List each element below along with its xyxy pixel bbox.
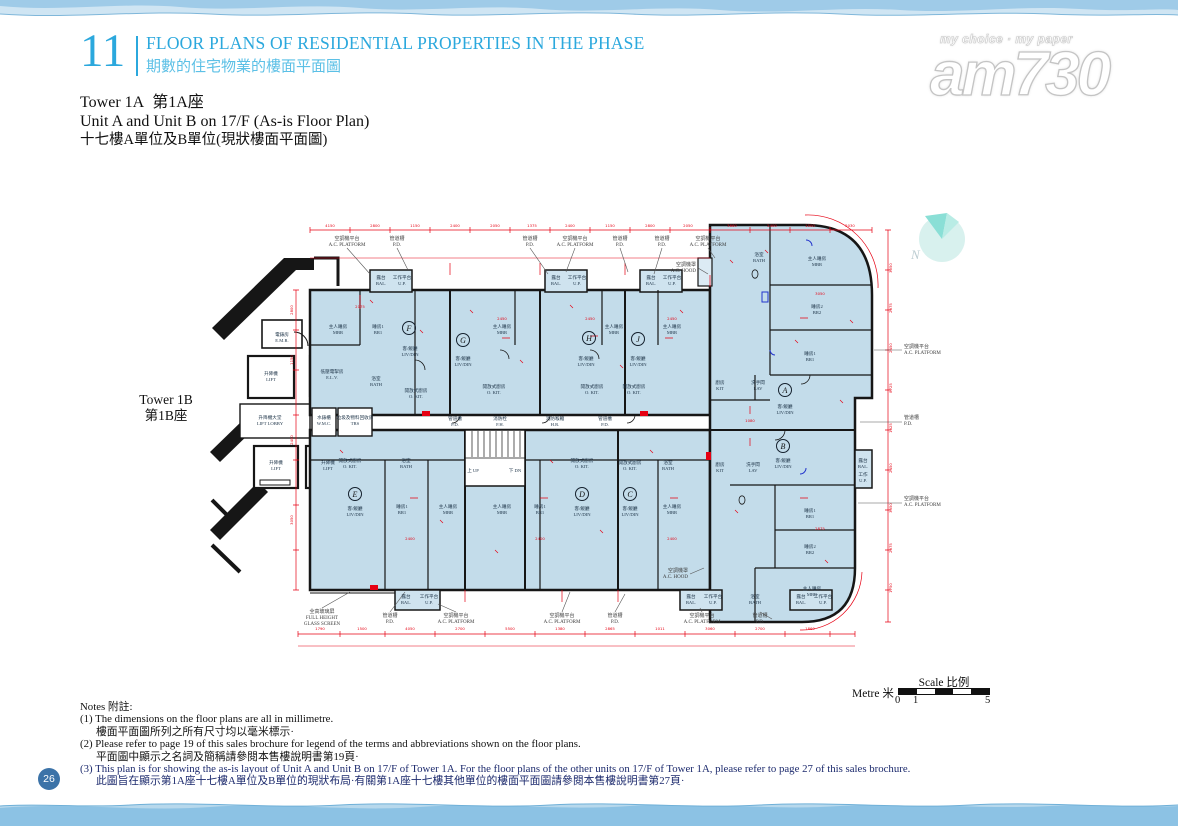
plan-label: 睡房2	[811, 303, 823, 310]
plan-label: 露台	[686, 593, 696, 600]
plan-label: 空調機罩	[668, 567, 688, 574]
plan-label: U.P.	[709, 600, 717, 605]
plan-label: F.H.	[496, 422, 504, 427]
plan-label: 管道槽	[607, 612, 622, 619]
plan-dimension: 4150	[325, 223, 335, 228]
bottom-wave-band	[0, 798, 1178, 826]
scale-track	[898, 688, 990, 695]
plan-dimension: 1150	[410, 223, 420, 228]
plan-label: BAL.	[796, 600, 806, 605]
plan-label: U.P.	[668, 281, 676, 286]
plan-label: BR1	[806, 514, 815, 519]
plan-label: 主人睡房	[808, 255, 827, 262]
plan-label: LIV/DIN	[346, 512, 364, 517]
plan-dimension: 3050	[289, 515, 294, 525]
plan-label: KIT	[716, 468, 724, 473]
plan-label: MBR	[812, 262, 823, 267]
plan-label: 洗手間	[751, 379, 765, 386]
plan-label: 客/飯廳	[402, 345, 417, 352]
plan-label: LIFT LOBBY	[257, 421, 284, 426]
plan-dimension: 2400	[667, 536, 677, 541]
plan-label: 管道槽	[598, 415, 612, 422]
plan-label: 工作	[858, 471, 868, 478]
plan-label: 空調機平台	[904, 343, 929, 350]
tower-name-zh: 第1A座	[152, 94, 204, 111]
plan-dimension: 1375	[527, 223, 537, 228]
plan-dimension: 3350	[888, 503, 893, 513]
plan-dimension: 2400	[450, 223, 460, 228]
note-3-en: (3) This plan is for showing the as-is l…	[80, 763, 1150, 775]
am730-logo: am730	[930, 46, 1150, 104]
plan-dimension: 2030	[845, 223, 855, 228]
plan-label: A.C. PLATFORM	[904, 503, 941, 508]
plan-dimension: 1750	[888, 583, 893, 593]
plan-label: BATH	[749, 600, 762, 605]
plan-label: LIV/DIN	[577, 362, 595, 367]
plan-label: 管道槽	[448, 415, 462, 422]
plan-label: U.P.	[398, 281, 406, 286]
plan-label: O. KIT.	[487, 390, 501, 395]
plan-label: LIV/DIN	[454, 362, 472, 367]
plan-label: P.D.	[904, 422, 912, 427]
plan-label: 空調機罩	[676, 261, 696, 268]
plan-label: LIFT	[271, 466, 281, 471]
plan-dimension: 2050	[683, 223, 693, 228]
unit-letter-D: D	[578, 490, 585, 499]
plan-label: 開放式廚房	[483, 383, 506, 390]
section-number: 11	[80, 26, 125, 76]
plan-label: BR1	[536, 510, 545, 515]
plan-dimension: 2875	[888, 303, 893, 313]
subtitle-tower-line: Tower 1A 第1A座	[80, 93, 369, 112]
plan-label: BATH	[753, 258, 766, 263]
plan-label: 睡房2	[804, 543, 816, 550]
plan-label: 客/飯廳	[455, 355, 470, 362]
plan-label: 工作平台	[568, 274, 587, 281]
page-number-badge: 26	[38, 768, 60, 790]
plan-label: FULL HEIGHT	[306, 616, 338, 621]
plan-dimension: 4050	[405, 626, 415, 631]
unit-letter-C: C	[627, 490, 633, 499]
plan-label: 主人睡房	[663, 323, 682, 330]
unit-letter-E: E	[352, 490, 358, 499]
north-arrow-art: N	[905, 206, 975, 276]
scale-unit-label: Metre 米	[852, 685, 894, 701]
plan-label: 空調機平台	[549, 612, 574, 619]
plan-label: 客/飯廳	[578, 355, 593, 362]
plan-label: 洗手間	[746, 461, 760, 468]
plan-label: H.R.	[551, 422, 560, 427]
top-wave-band	[0, 0, 1178, 22]
plan-label: BR1	[398, 510, 407, 515]
plan-dimension: 2400	[289, 435, 294, 445]
subtitle-unit-line-en: Unit A and Unit B on 17/F (As-is Floor P…	[80, 112, 369, 131]
subtitle-unit-line-zh: 十七樓A單位及B單位(現狀樓面平面圖)	[80, 131, 369, 150]
plan-label: 主人睡房	[803, 585, 822, 592]
floor-plan-svg: 空調機平台A.C. PLATFORM管道槽P.D.管道槽P.D.空調機平台A.C…	[210, 200, 950, 660]
tower-name-en: Tower 1A	[80, 94, 144, 111]
plan-label: 露台	[551, 274, 561, 281]
plan-label: LIV/DIN	[776, 410, 794, 415]
plan-label: 升降機	[321, 459, 335, 466]
plan-label: E.L.V.	[326, 375, 338, 380]
plan-dimension: 3660	[727, 223, 737, 228]
tower-1b-en: Tower 1B	[118, 392, 214, 408]
notes-section: Notes 附註: (1) The dimensions on the floo…	[80, 701, 1150, 788]
plan-label: 消防栓	[493, 415, 507, 422]
header-divider	[136, 36, 138, 76]
plan-label: O. KIT.	[627, 390, 641, 395]
plan-label: 廚房	[715, 461, 725, 468]
plan-dimension: 2865	[605, 626, 615, 631]
plan-dimension: 1150	[289, 355, 294, 365]
plan-dimension: 2875	[888, 543, 893, 553]
plan-label: A.C. HOOD	[671, 269, 697, 274]
plan-label: LIV/DIN	[401, 352, 419, 357]
plan-label: 工作平台	[814, 593, 833, 600]
plan-label: 空調機平台	[334, 235, 359, 242]
plan-label: 管道槽	[389, 235, 404, 242]
plan-dimension: 2450	[667, 316, 677, 321]
plan-label: 管道槽	[752, 612, 767, 619]
page-title-en: FLOOR PLANS OF RESIDENTIAL PROPERTIES IN…	[146, 33, 645, 54]
plan-label: 睡房1	[804, 350, 816, 357]
plan-label: 電錶房	[275, 331, 289, 338]
plan-label: MBR	[609, 330, 620, 335]
plan-label: 管道槽	[904, 414, 919, 421]
plan-dimension: 2450	[585, 316, 595, 321]
plan-label: 客/飯廳	[622, 505, 637, 512]
plan-dimension: 8725	[888, 383, 893, 393]
plan-label: U.P.	[425, 600, 433, 605]
unit-letter-J: J	[636, 335, 640, 344]
plan-label: 露台	[796, 593, 806, 600]
note-2-zh: 平面圖中顯示之名詞及簡稱請參閱本售樓說明書第19頁·	[80, 751, 1150, 763]
plan-label: 空調機平台	[562, 235, 587, 242]
plan-label: P.D.	[526, 243, 534, 248]
note-3-zh: 此圖旨在顯示第1A座十七樓A單位及B單位的現狀布局·有關第1A座十七樓其他單位的…	[80, 775, 1150, 787]
plan-dimension: 1150	[605, 223, 615, 228]
plan-label: P.D.	[611, 620, 619, 625]
plan-label: 垃圾及物料回收房	[337, 414, 374, 421]
plan-label: BAL.	[686, 600, 696, 605]
plan-label: U.P.	[573, 281, 581, 286]
plan-label: A.C. PLATFORM	[557, 243, 594, 248]
plan-dimension: 2875	[815, 526, 825, 531]
plan-dimension: 2450	[497, 316, 507, 321]
plan-label: U.P.	[859, 478, 867, 483]
plan-dimension: 2700	[455, 626, 465, 631]
plan-dimension: 2800	[645, 223, 655, 228]
plan-label: 開放式廚房	[571, 457, 594, 464]
plan-dimension: 3050	[888, 263, 893, 273]
plan-label: A.C. PLATFORM	[544, 620, 581, 625]
plan-label: 開放式廚房	[405, 387, 428, 394]
plan-label: 主人睡房	[605, 323, 624, 330]
note-2-en: (2) Please refer to page 19 of this sale…	[80, 738, 1150, 750]
plan-label: P.D.	[386, 620, 394, 625]
plan-label: 露台	[401, 593, 411, 600]
plan-label: KIT	[716, 386, 724, 391]
plan-label: O. KIT.	[409, 394, 423, 399]
plan-label: O. KIT.	[585, 390, 599, 395]
plan-label: 客/飯廳	[777, 403, 792, 410]
plan-label: A.C. PLATFORM	[329, 243, 366, 248]
plan-label: 工作平台	[663, 274, 682, 281]
plan-label: 工作平台	[704, 593, 723, 600]
plan-label: 開放式廚房	[339, 457, 362, 464]
plan-label: BR2	[806, 550, 815, 555]
note-1-en: (1) The dimensions on the floor plans ar…	[80, 713, 1150, 725]
top-wave-art	[0, 0, 1178, 22]
plan-dimension: 2450	[888, 463, 893, 473]
plan-label: LIV/DIN	[774, 464, 792, 469]
plan-label: 低壓電掣房	[321, 368, 344, 375]
unit-letter-B: B	[781, 442, 786, 451]
plan-dimension: 2700	[755, 626, 765, 631]
plan-label: P.D.	[451, 422, 459, 427]
plan-dimension: 1825	[888, 423, 893, 433]
plan-label: 上 UP	[467, 467, 479, 473]
plan-label: W.M.C.	[317, 421, 332, 426]
plan-label: 浴室	[750, 593, 760, 600]
plan-dimension: 2800	[289, 305, 294, 315]
plan-label: 管道槽	[612, 235, 627, 242]
plan-label: LIFT	[266, 377, 276, 382]
note-1-zh: 樓面平面圖所列之所有尺寸均以毫米標示·	[80, 726, 1150, 738]
plan-label: 主人睡房	[329, 323, 348, 330]
plan-label: BR1	[374, 330, 383, 335]
plan-label: 消防喉轆	[546, 415, 565, 422]
plan-label: A.C. PLATFORM	[684, 620, 721, 625]
unit-letter-F: F	[406, 324, 412, 333]
plan-label: BAL.	[858, 464, 868, 469]
plan-label: BR2	[813, 310, 822, 315]
plan-label: P.D.	[756, 620, 764, 625]
north-arrow: N	[905, 206, 975, 276]
plan-dimension: 1790	[315, 626, 325, 631]
plan-label: 工作平台	[393, 274, 412, 281]
plan-label: 睡房1	[534, 503, 546, 510]
plan-label: BAL.	[551, 281, 561, 286]
plan-label: LAV	[754, 386, 764, 391]
plan-label: O. KIT.	[623, 466, 637, 471]
bottom-wave-art	[0, 798, 1178, 826]
plan-label: O. KIT.	[343, 464, 357, 469]
plan-label: 開放式廚房	[619, 459, 642, 466]
plan-label: LIV/DIN	[573, 512, 591, 517]
plan-label: 客/飯廳	[574, 505, 589, 512]
plan-label: BATH	[662, 466, 675, 471]
plan-dimension: 2450	[888, 343, 893, 353]
plan-label: 浴室	[371, 375, 381, 382]
plan-label: 露台	[858, 457, 868, 464]
plan-label: LIV/DIN	[621, 512, 639, 517]
plan-dimension: 3060	[705, 626, 715, 631]
plan-dimension: 1860	[805, 626, 815, 631]
plan-label: 主人睡房	[663, 503, 682, 510]
plan-label: BR1	[806, 357, 815, 362]
plan-dimension: 2175	[355, 304, 365, 309]
plan-label: U.P.	[819, 600, 827, 605]
plan-label: A.C. PLATFORM	[438, 620, 475, 625]
plan-label: 睡房1	[372, 323, 384, 330]
plan-label: 浴室	[663, 459, 673, 466]
plan-dimension: 5500	[505, 626, 515, 631]
plan-dimension: 2400	[535, 536, 545, 541]
plan-label: BAL.	[646, 281, 656, 286]
plan-label: 浴室	[401, 457, 411, 464]
plan-label: MBR	[497, 330, 508, 335]
plan-label: 管道槽	[654, 235, 669, 242]
plan-label: MBR	[333, 330, 344, 335]
plan-label: MBR	[667, 330, 678, 335]
plan-label: 客/飯廳	[630, 355, 645, 362]
plan-label: LAV	[749, 468, 759, 473]
plan-label: 主人睡房	[439, 503, 458, 510]
plan-label: 空調機平台	[689, 612, 714, 619]
plan-label: 露台	[646, 274, 656, 281]
plan-dimension: 1380	[555, 626, 565, 631]
building-walls	[310, 225, 872, 622]
plan-label: 水錶櫃	[317, 414, 331, 421]
plan-dimension: 2050	[490, 223, 500, 228]
plan-label: MBR	[497, 510, 508, 515]
plan-label: 睡房1	[804, 507, 816, 514]
plan-label: 露台	[376, 274, 386, 281]
tower-1b-zh: 第1B座	[118, 408, 214, 424]
page-title-zh: 期數的住宅物業的樓面平面圖	[146, 55, 341, 76]
plan-label: BAL.	[401, 600, 411, 605]
plan-label: 浴室	[754, 251, 764, 258]
plan-dimension: 1011	[655, 626, 665, 631]
plan-dimension: 2800	[370, 223, 380, 228]
plan-label: 開放式廚房	[581, 383, 604, 390]
plan-label: 開放式廚房	[623, 383, 646, 390]
plan-label: P.D.	[393, 243, 401, 248]
plan-label: 空調機平台	[904, 495, 929, 502]
plan-label: 升降機	[264, 370, 278, 377]
tower-1b-label: Tower 1B 第1B座	[118, 392, 214, 424]
plan-label: BATH	[400, 464, 413, 469]
unit-letter-A: A	[782, 386, 788, 395]
am730-watermark: my choice · my paper am730	[930, 32, 1150, 104]
plan-dimension: 1500	[357, 626, 367, 631]
plan-label: 客/飯廳	[347, 505, 362, 512]
plan-dimension: 2400	[405, 536, 415, 541]
plan-label: 管道槽	[382, 612, 397, 619]
plan-label: E.M.R.	[275, 338, 288, 343]
unit-letter-G: G	[460, 336, 466, 345]
plan-label: MBR	[667, 510, 678, 515]
plan-label: 主人睡房	[493, 323, 512, 330]
plan-label: A.C. PLATFORM	[904, 351, 941, 356]
plan-label: 全高玻璃屏	[309, 608, 334, 615]
plan-label: 管道槽	[522, 235, 537, 242]
plan-label: A.C. HOOD	[663, 575, 689, 580]
plan-label: P.D.	[601, 422, 609, 427]
plan-dimension: 1500	[805, 223, 815, 228]
plan-label: BATH	[370, 382, 383, 387]
plan-label: A.C. PLATFORM	[690, 243, 727, 248]
plan-label: 空調機平台	[695, 235, 720, 242]
plan-dimension: 3050	[815, 291, 825, 296]
plan-label: BAL.	[376, 281, 386, 286]
plan-label: 工作平台	[420, 593, 439, 600]
plan-label: 廚房	[715, 379, 725, 386]
plan-label: 睡房1	[396, 503, 408, 510]
plan-label: 客/飯廳	[775, 457, 790, 464]
notes-heading: Notes 附註:	[80, 701, 1150, 713]
plan-label: 升降機	[269, 459, 283, 466]
plan-label: P.D.	[616, 243, 624, 248]
plan-label: MBR	[443, 510, 454, 515]
plan-label: LIFT	[323, 466, 333, 471]
plan-label: 升降機大堂	[259, 414, 282, 421]
floor-plan: 空調機平台A.C. PLATFORM管道槽P.D.管道槽P.D.空調機平台A.C…	[210, 200, 950, 660]
plan-subtitle: Tower 1A 第1A座 Unit A and Unit B on 17/F …	[80, 93, 369, 150]
plan-label: TRS	[351, 421, 360, 426]
plan-dimension: 2400	[565, 223, 575, 228]
plan-dimension: 1080	[745, 418, 755, 423]
north-label: N	[910, 247, 921, 262]
plan-label: 空調機平台	[443, 612, 468, 619]
plan-label: P.D.	[658, 243, 666, 248]
plan-label: 主人睡房	[493, 503, 512, 510]
plan-dimension: 2400	[767, 223, 777, 228]
plan-label: LIV/DIN	[629, 362, 647, 367]
plan-label: O. KIT.	[575, 464, 589, 469]
